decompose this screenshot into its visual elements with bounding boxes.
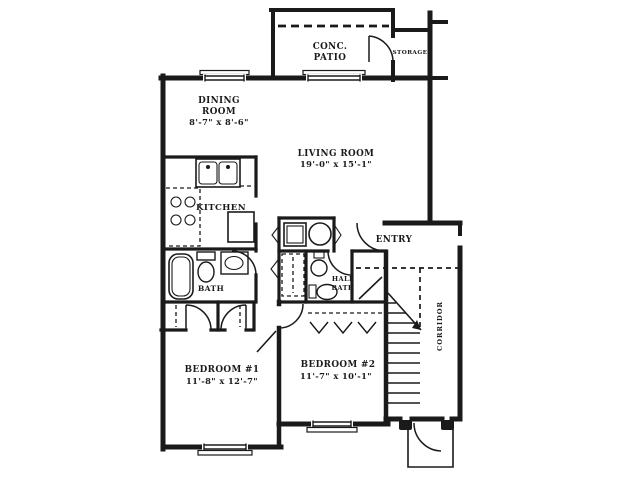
interior-walls [161,157,386,330]
half-bath-toilet-tank [309,285,316,298]
bifold-door [334,322,352,333]
room-labels: CONC. PATIO STORAGE DINING ROOM 8'-7" x … [185,42,444,386]
living-label: LIVING ROOM [298,149,375,159]
patio-door-sill [303,71,365,75]
storage-door [369,36,393,62]
dining-label-1: DINING [198,96,240,106]
bedroom2-dims: 11'-7" x 10'-1" [300,371,372,381]
bedroom1-label: BEDROOM #1 [185,365,260,375]
closet-door-left [186,305,211,330]
bifold-chevron [271,260,278,278]
entry-stoop [399,420,454,467]
bifold-chevron [335,226,341,244]
entry-label: ENTRY [376,235,413,245]
patio-label-2: PATIO [314,53,347,63]
stoop-door [414,423,441,451]
bedroom2-label: BEDROOM #2 [301,360,376,370]
closet-door-right [221,305,246,330]
patio-storage-walls [271,10,446,80]
kitchen-sink [196,159,240,187]
half-bath-label-1: HALF [332,275,354,283]
living-dims: 19'-0" x 15'-1" [300,159,372,169]
pantry-shelves [282,254,304,296]
toilet-tank [197,252,215,260]
half-bath-door [328,251,352,275]
toilet [198,262,214,282]
dining-label-2: ROOM [202,107,236,117]
stair-treads [388,303,420,403]
stove-burner [185,197,195,207]
bath-door [232,251,256,275]
storage-label: STORAGE [392,50,427,56]
bedroom2-door [279,304,303,328]
stove-burner [171,215,181,225]
floor-plan-svg: CONC. PATIO STORAGE DINING ROOM 8'-7" x … [0,0,640,480]
bedroom1-dims: 11'-8" x 12'-7" [186,376,258,386]
bifold-door [358,322,376,333]
stairs [388,293,421,403]
dryer [309,223,331,245]
dining-window-sill [200,71,249,75]
patio-label-1: CONC. [313,42,348,52]
bedroom1-door [257,331,276,352]
kitchen-counter [166,188,200,246]
bath-label: BATH [198,284,224,293]
stove-burner [185,215,195,225]
kitchen-label: KITCHEN [196,203,246,213]
floor-plan-image: CONC. PATIO STORAGE DINING ROOM 8'-7" x … [0,0,640,480]
stove-burner [171,197,181,207]
half-bath-sink [311,260,327,276]
understair-closet-door [359,277,382,299]
dining-dims: 8'-7" x 8'-6" [189,117,249,127]
refrigerator [228,212,254,242]
bifold-door [310,322,328,333]
corridor-label: CORRIDOR [436,301,444,351]
half-bath-label-2: BATH [331,284,354,292]
